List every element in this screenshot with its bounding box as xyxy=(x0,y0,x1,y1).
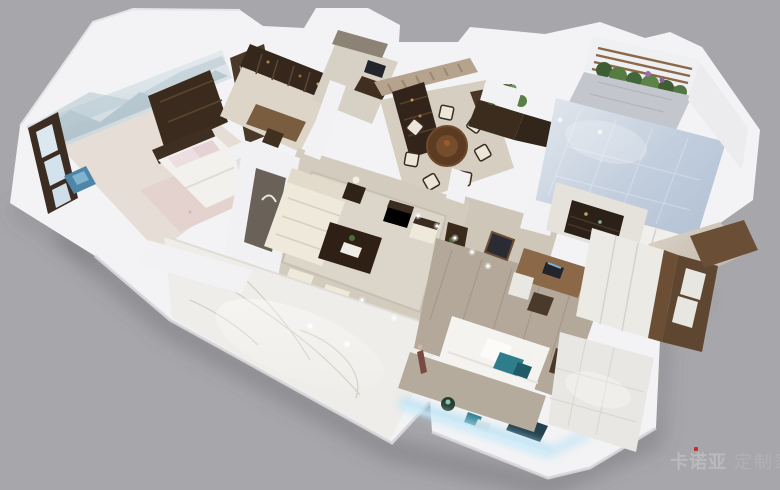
table-lamp xyxy=(353,177,360,184)
watermark-suffix: 定制家 xyxy=(734,448,780,474)
watermark: 卡诺亚 定制家 xyxy=(670,448,780,474)
watermark-accent-dot xyxy=(694,447,698,451)
apartment-render xyxy=(0,0,780,490)
render-canvas: 卡诺亚 定制家 xyxy=(0,0,780,490)
watermark-brand: 卡诺亚 xyxy=(670,448,727,474)
